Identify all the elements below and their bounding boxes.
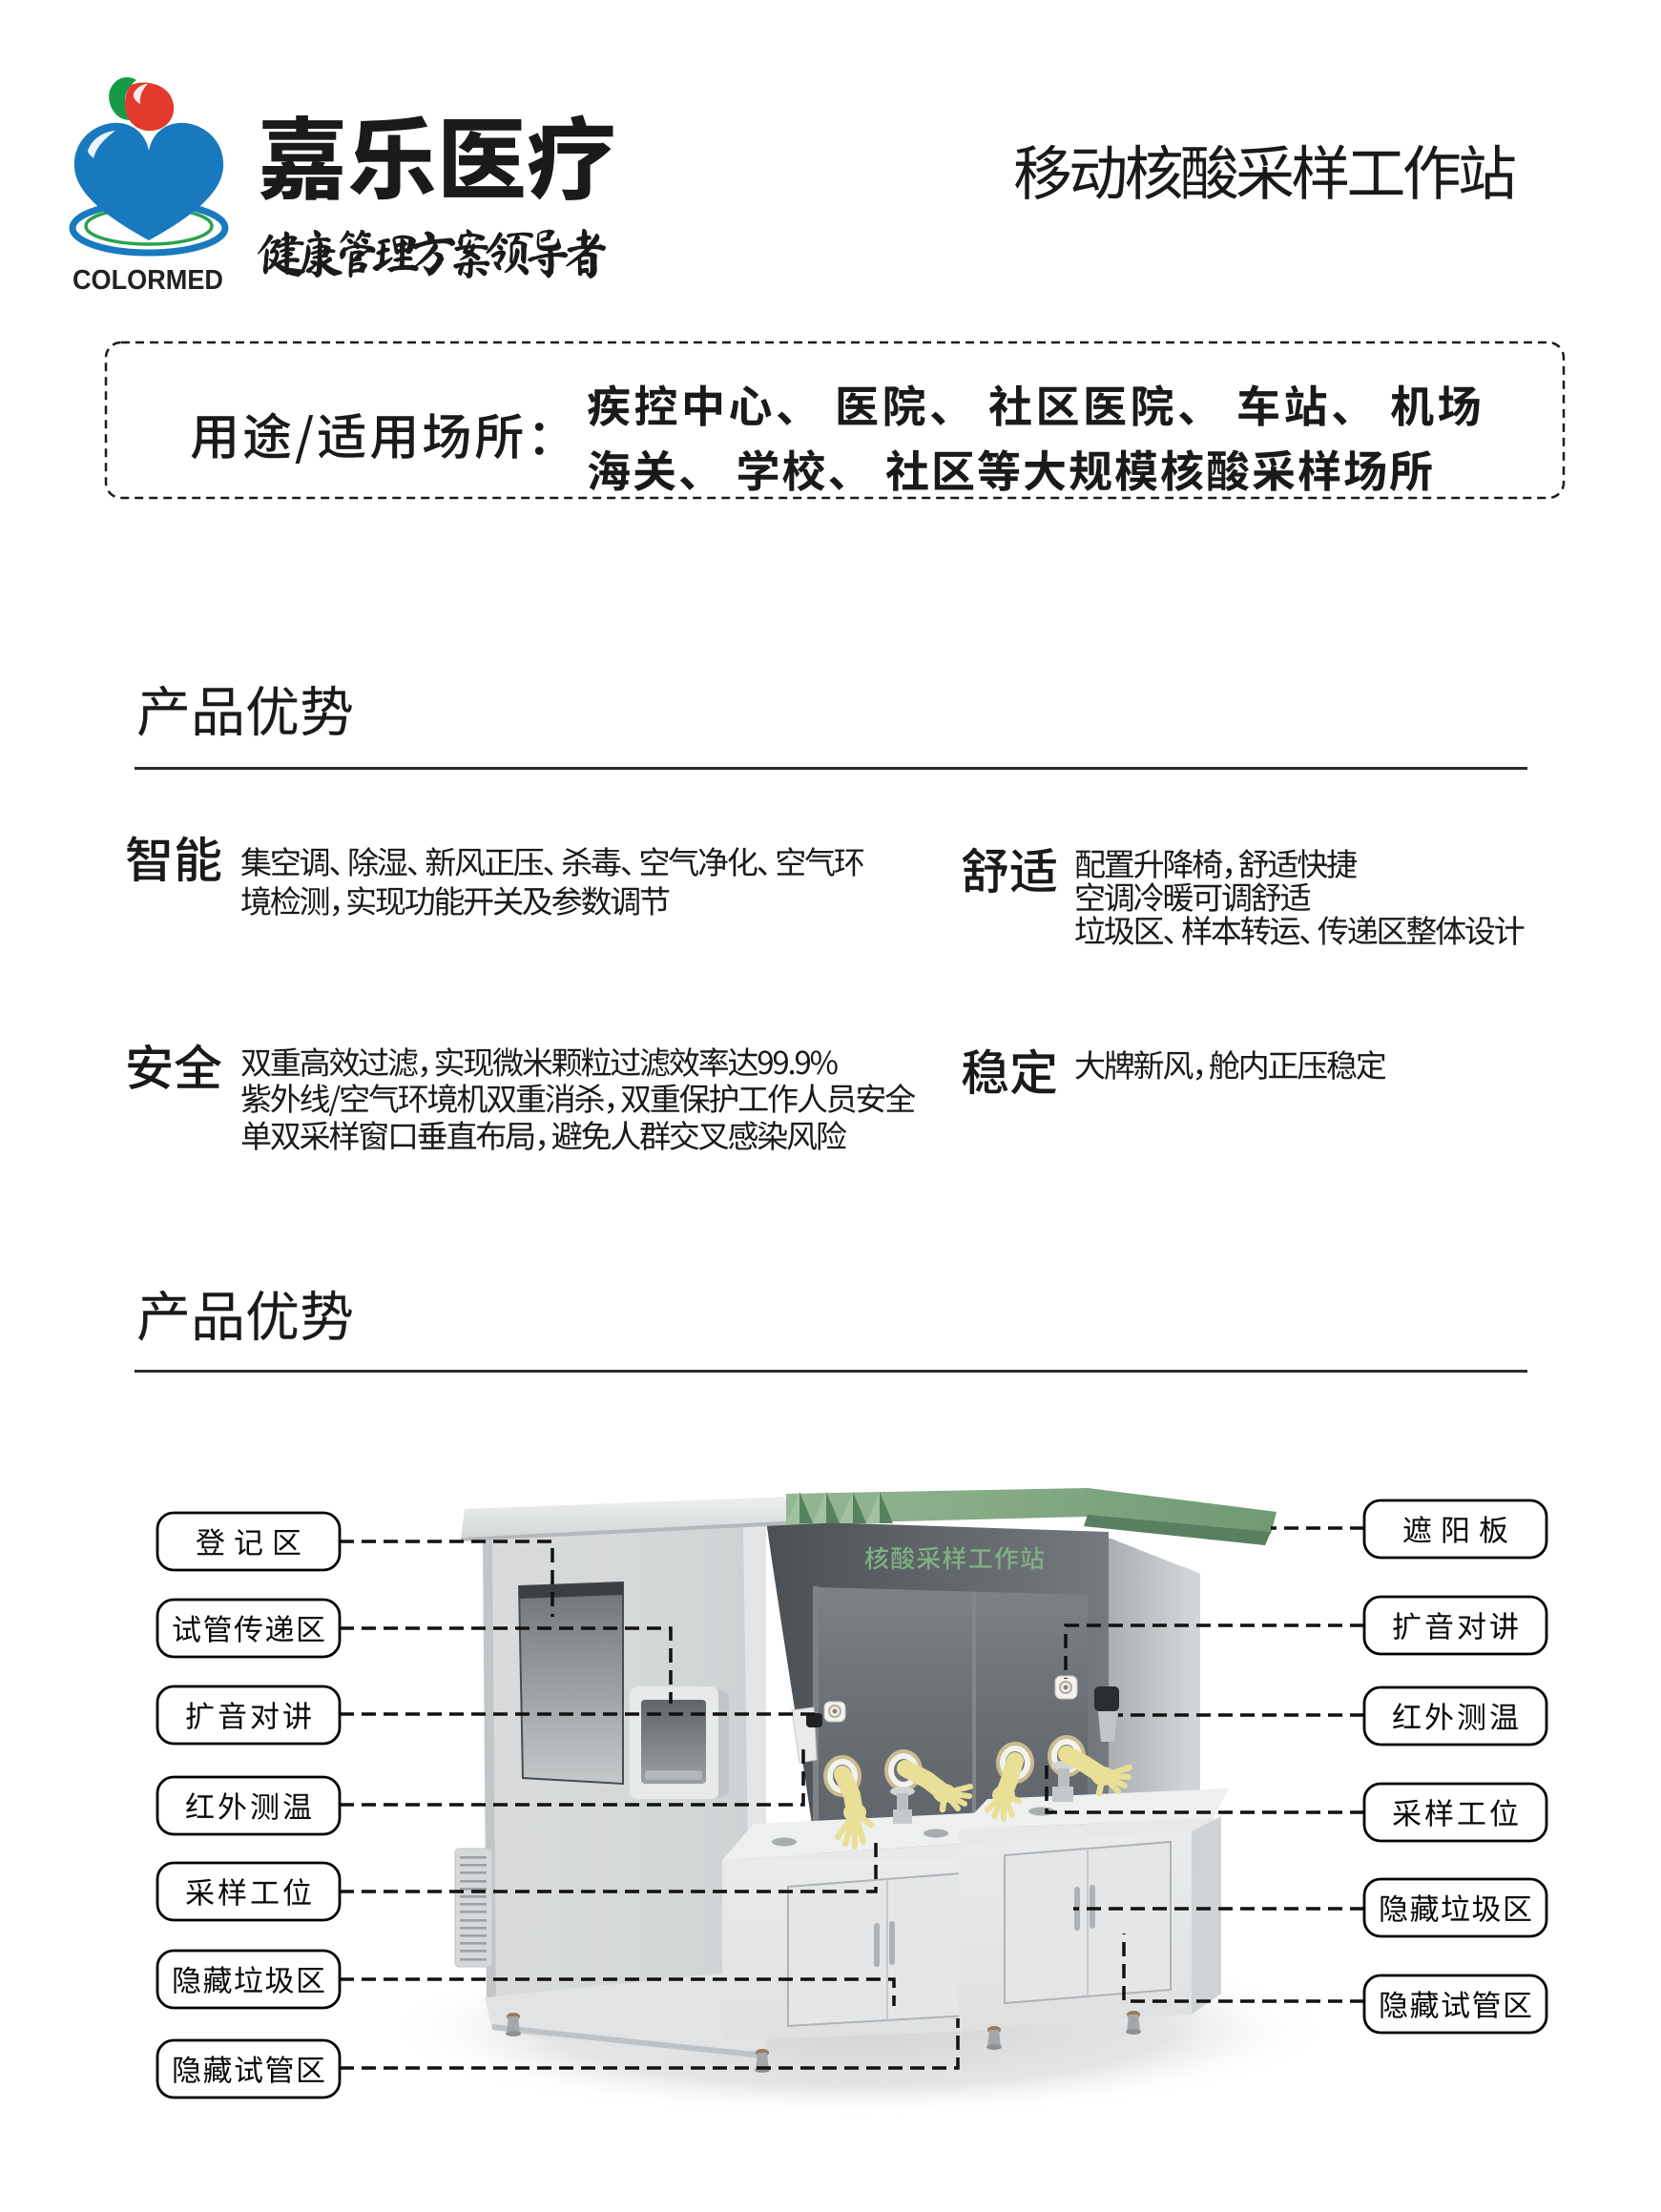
svg-text:COLORMED: COLORMED (73, 265, 223, 296)
